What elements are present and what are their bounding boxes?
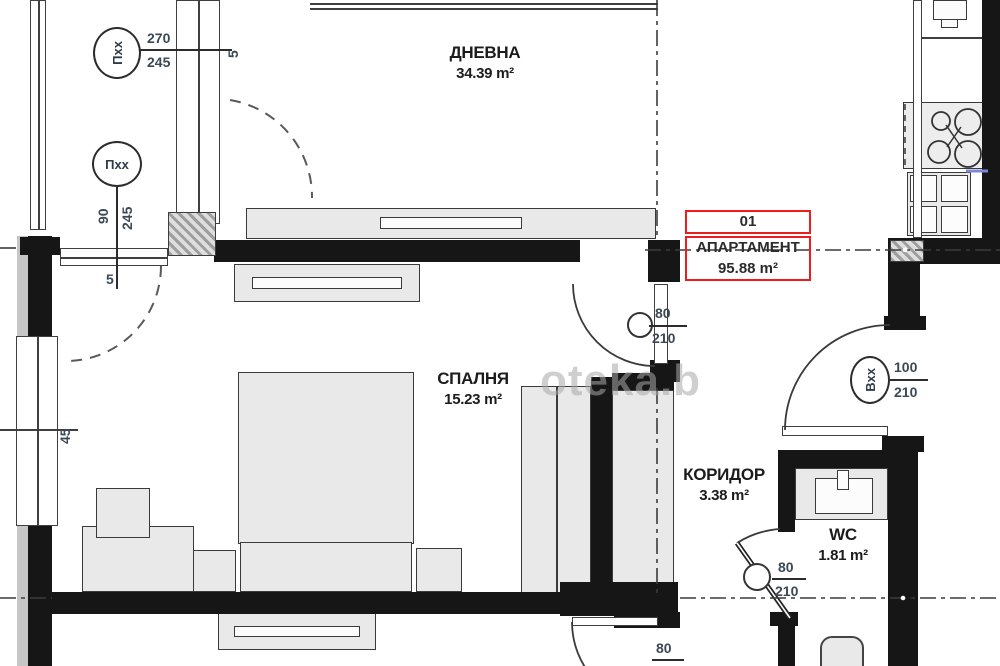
- fraction-line: [772, 578, 806, 580]
- dim-wc-door-width: 80: [778, 560, 794, 574]
- wc-door-arc: [737, 529, 780, 543]
- window-tag-small: Пхх: [92, 141, 142, 187]
- wall-segment: [888, 450, 918, 666]
- dim-bedroom-door-width: 80: [655, 306, 671, 320]
- room-label-living: ДНЕВНА 34.39 m²: [420, 42, 550, 84]
- room-area-bedroom: 15.23 m²: [408, 390, 538, 410]
- apartment-area: 95.88 m²: [687, 259, 809, 279]
- bedroom-window: [16, 336, 58, 526]
- bedroom-cabinet-slot: [252, 277, 402, 289]
- fraction-line: [652, 659, 684, 661]
- room-name-corridor: КОРИДОР: [660, 464, 788, 486]
- sideboard-slot: [380, 217, 522, 229]
- door-frame: [770, 612, 798, 626]
- window-tag-large-code: Пхх: [110, 41, 125, 65]
- bed-headboard: [240, 542, 412, 592]
- window-tag-small-code: Пхх: [105, 157, 129, 172]
- leader-line: [140, 49, 232, 51]
- wall-segment: [20, 237, 60, 255]
- bottom-door-arc: [572, 622, 657, 666]
- apartment-label: АПАРТАМЕНТ: [687, 238, 809, 258]
- bedroom-door-arc: [573, 284, 655, 366]
- dim-bedroom-door-height: 210: [652, 331, 675, 345]
- floor-plan: Пхх 270 245 5 Пхх 90 245 45 5 80: [0, 0, 1000, 666]
- cabinet-cell: [941, 206, 968, 233]
- entrance-door-tag: Вхх: [850, 356, 890, 404]
- wall-hatch-corner: [890, 240, 924, 262]
- wall-segment: [778, 450, 890, 468]
- wall-segment: [888, 262, 920, 318]
- fraction-line: [649, 325, 687, 327]
- apartment-info: АПАРТАМЕНТ 95.88 m²: [685, 236, 811, 281]
- room-label-bedroom: СПАЛНЯ 15.23 m²: [408, 368, 538, 410]
- dim-sill-top: 5: [226, 32, 242, 58]
- nightstand-right: [416, 548, 462, 592]
- dim-entrance-height: 210: [894, 385, 917, 399]
- dim-window-large-width: 270: [147, 31, 170, 45]
- balcony-glazing: [176, 0, 220, 224]
- wc-door-knob: [744, 564, 770, 590]
- room-area-corridor: 3.38 m²: [660, 486, 788, 506]
- room-name-bedroom: СПАЛНЯ: [408, 368, 538, 390]
- dim-window-large-height: 245: [147, 55, 170, 69]
- room-label-corridor: КОРИДОР 3.38 m²: [660, 464, 788, 506]
- window-tag-large: Пхх: [93, 27, 141, 79]
- toilet: [820, 636, 864, 666]
- apartment-number: 01: [685, 210, 811, 234]
- dim-entrance-width: 100: [894, 360, 917, 374]
- door-frame: [884, 316, 926, 330]
- wall-pillar: [648, 240, 680, 282]
- dim-sill-left: 5: [106, 272, 114, 286]
- balcony-door-swing-arc: [230, 100, 312, 198]
- wc-door-leaf-inner: [737, 543, 790, 618]
- kitchen-partition: [913, 0, 922, 238]
- counter-line: [922, 37, 982, 39]
- wall-segment: [982, 0, 1000, 240]
- balcony-door-window: [60, 248, 168, 266]
- dresser-top-box: [96, 488, 150, 538]
- room-area-living: 34.39 m²: [420, 64, 550, 84]
- apartment-tag: 01 АПАРТАМЕНТ 95.88 m²: [685, 210, 811, 281]
- kitchen-sink: [933, 0, 967, 20]
- wall-segment: [28, 592, 564, 614]
- leader-line: [116, 187, 118, 289]
- dim-wall-left: 45: [58, 402, 76, 444]
- watermark: oteka.b: [540, 356, 740, 406]
- bed: [238, 372, 414, 544]
- fraction-line: [890, 379, 928, 381]
- radiator-slot: [234, 626, 360, 637]
- room-area-wc: 1.81 m²: [798, 546, 888, 566]
- wall-segment: [560, 582, 678, 616]
- wall-hatch-corner: [168, 212, 216, 256]
- room-name-wc: WC: [798, 524, 888, 546]
- kitchen-sink-faucet: [941, 19, 958, 28]
- entrance-door-code: Вхх: [863, 368, 878, 392]
- washbasin-faucet: [837, 470, 849, 490]
- wall-facing: [17, 526, 28, 666]
- room-name-living: ДНЕВНА: [420, 42, 550, 64]
- wall-line: [310, 3, 658, 5]
- wall-line: [310, 8, 658, 10]
- dim-window-small-width: 90: [96, 190, 112, 224]
- wc-door-leaf: [737, 543, 790, 618]
- bedroom-door-leaf: [654, 284, 668, 364]
- entrance-door-leaf: [782, 426, 888, 436]
- dim-window-small-height: 245: [120, 190, 136, 230]
- room-label-wc: WC 1.81 m²: [798, 524, 888, 566]
- bottom-door-leaf: [572, 617, 658, 626]
- wall-segment: [591, 377, 612, 593]
- cabinet-cell: [941, 175, 968, 202]
- dim-wc-door-height: 210: [775, 584, 798, 598]
- nightstand-left: [192, 550, 236, 592]
- dim-bottom-door-width: 80: [656, 641, 672, 655]
- wall-segment: [214, 240, 580, 262]
- balcony-railing: [30, 0, 46, 230]
- bedroom-wardrobe: [521, 386, 591, 596]
